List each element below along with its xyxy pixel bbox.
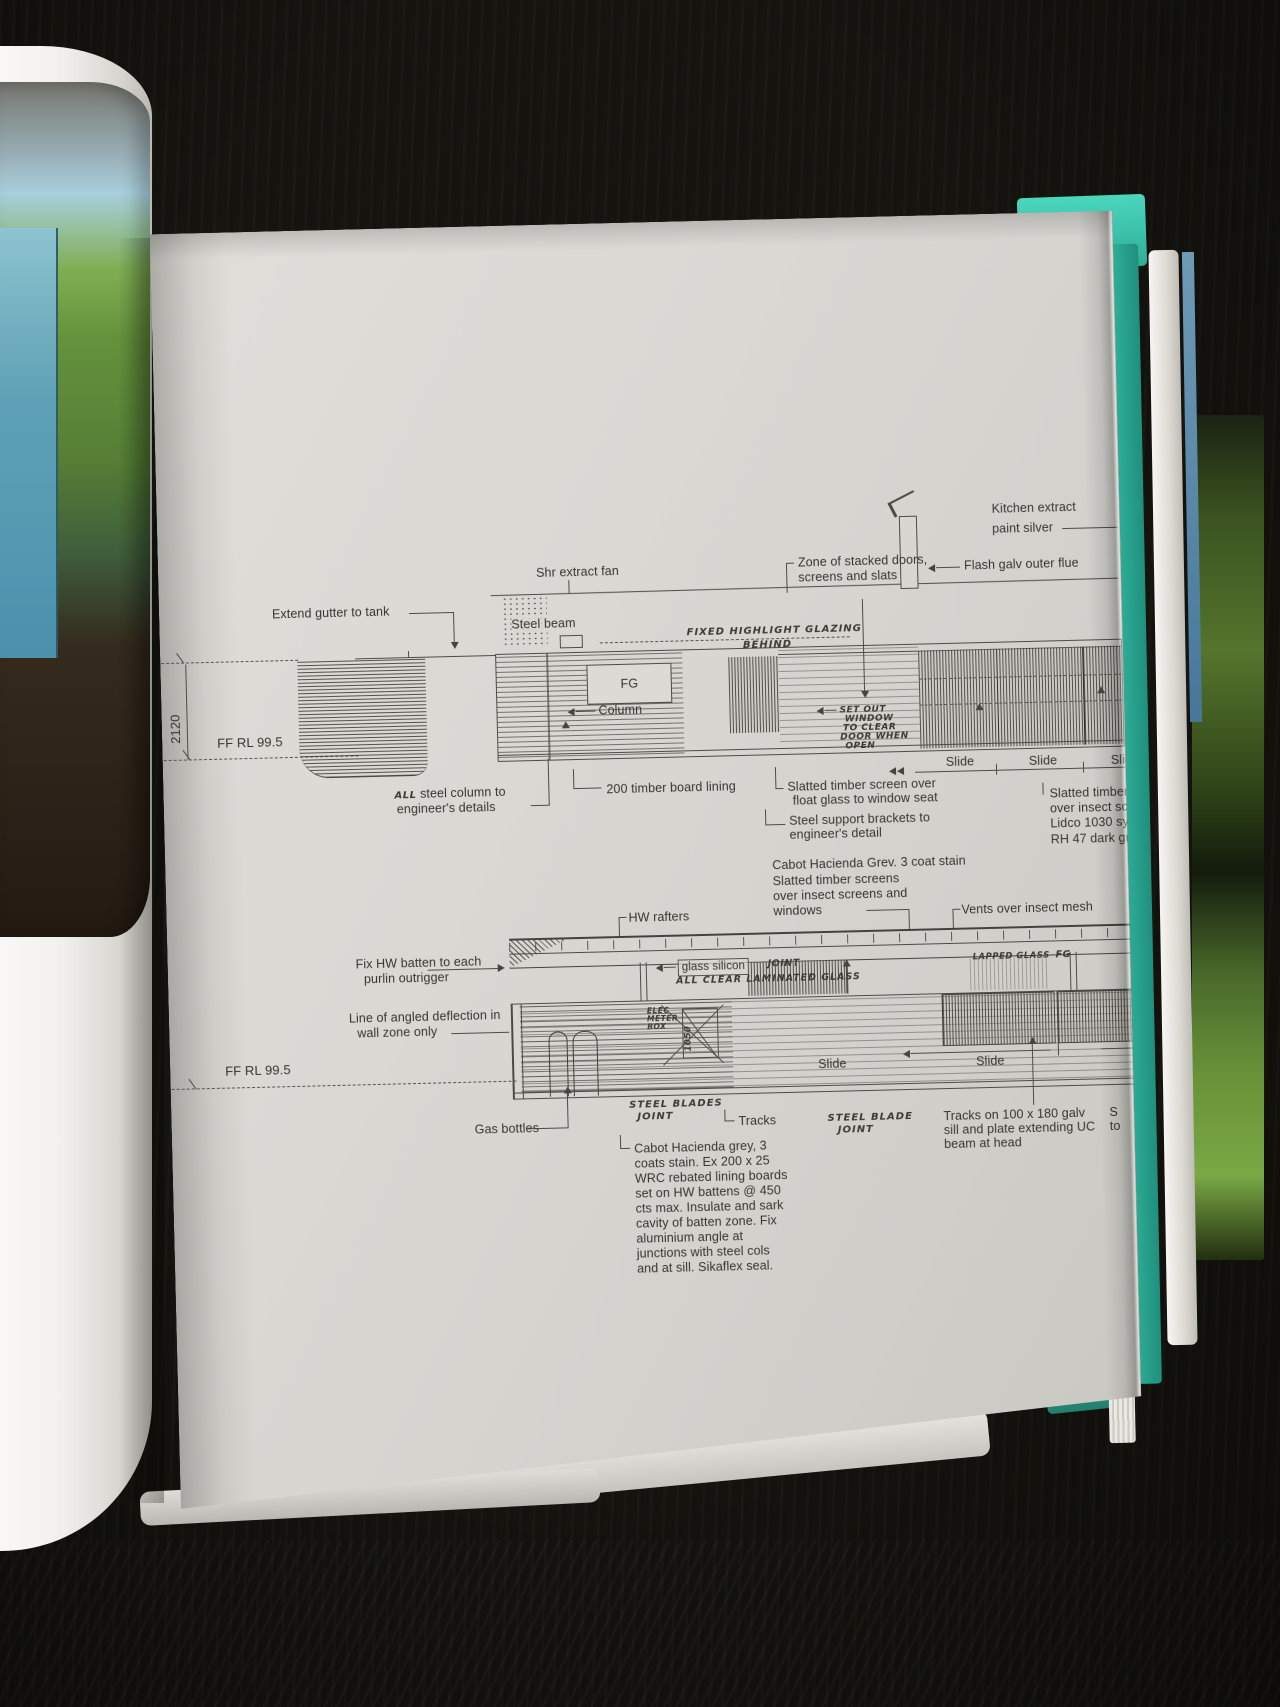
bracket bbox=[775, 767, 777, 789]
arrow-up-icon bbox=[1029, 1037, 1037, 1044]
bracket bbox=[620, 1135, 621, 1149]
hand-lapped-glass: LAPPED GLASS bbox=[973, 951, 1050, 963]
label-timber-lining: 200 timber board lining bbox=[606, 779, 736, 797]
bracket bbox=[765, 809, 766, 825]
bracket bbox=[725, 1120, 735, 1121]
leader-line bbox=[548, 759, 550, 806]
label-cabot-mid-3: windows bbox=[773, 903, 822, 919]
arrow-left-icon bbox=[816, 707, 823, 715]
arrow-left-icon bbox=[567, 708, 574, 716]
label-kitchen-2: paint silver bbox=[992, 520, 1053, 536]
bracket bbox=[573, 787, 601, 789]
fg-window-box: FG bbox=[586, 663, 672, 705]
leader-line bbox=[451, 1032, 509, 1034]
hand-fg: FG bbox=[1055, 950, 1071, 961]
arrow-left-icon bbox=[656, 964, 663, 972]
bracket bbox=[775, 788, 783, 789]
zone-bracket bbox=[786, 563, 794, 564]
label-zone-1: Zone of stacked doors, bbox=[798, 552, 928, 570]
arrow-up-icon bbox=[564, 1086, 572, 1093]
datum-label-upper: FF RL 99.5 bbox=[217, 734, 283, 751]
arrow-down-icon bbox=[861, 691, 869, 698]
label-gas-bottles: Gas bottles bbox=[475, 1121, 540, 1138]
hand-blades2-a: STEEL BLADE bbox=[827, 1112, 913, 1125]
wood-grain-texture-bottom bbox=[0, 1540, 1280, 1707]
lower-elevation-body bbox=[511, 986, 1144, 1100]
label-slide-lower-2: Slide bbox=[976, 1054, 1005, 1070]
dim-tick bbox=[996, 764, 997, 775]
leader-line bbox=[568, 580, 569, 593]
label-flash-galv: Flash galv outer flue bbox=[964, 556, 1079, 574]
arrow-up-icon bbox=[562, 721, 570, 728]
book-page: 2120 FF RL 99.5 FG bbox=[150, 211, 1144, 1509]
slat-panel-small bbox=[728, 656, 780, 733]
bracket bbox=[620, 1148, 630, 1149]
bracket bbox=[952, 909, 953, 928]
label-support-2: engineer's detail bbox=[789, 826, 882, 843]
label-shr-extract-fan: Shr extract fan bbox=[536, 564, 619, 581]
bracket bbox=[1042, 783, 1043, 795]
arrow-up-icon bbox=[975, 703, 983, 710]
hand-blades2-b: JOINT bbox=[838, 1125, 874, 1136]
windows-leader bbox=[908, 909, 909, 929]
leader-line bbox=[453, 612, 455, 644]
hand-fixed-highlight-2: BEHIND bbox=[743, 640, 792, 652]
label-slide-2: Slide bbox=[1029, 753, 1058, 769]
arrow-left-icon bbox=[903, 1050, 910, 1058]
label-slatted-2: float glass to window seat bbox=[793, 790, 938, 809]
label-hw-rafters: HW rafters bbox=[628, 909, 689, 925]
fg-label: FG bbox=[620, 677, 638, 691]
dim-2120: 2120 bbox=[167, 680, 184, 744]
hand-elec-2: BOX bbox=[647, 1022, 666, 1033]
post bbox=[640, 963, 642, 1001]
zone-bracket bbox=[786, 563, 788, 593]
label-fix-hw-2: purlin outrigger bbox=[364, 970, 449, 987]
label-cabot-para-5: cavity of batten zone. Fix bbox=[636, 1213, 777, 1231]
upper-elevation-body: FG bbox=[495, 639, 1124, 762]
rafter-ticks bbox=[509, 925, 1143, 952]
leader-line bbox=[936, 567, 960, 569]
label-kitchen-1: Kitchen extract bbox=[991, 500, 1076, 517]
leader-line bbox=[409, 612, 454, 614]
bracket bbox=[952, 909, 960, 910]
bracket bbox=[619, 917, 620, 936]
hand-joint: JOINT bbox=[768, 959, 800, 970]
arrow-right-icon bbox=[498, 964, 505, 972]
post bbox=[1076, 952, 1078, 990]
label-cabot-para-8: and at sill. Sikaflex seal. bbox=[637, 1258, 773, 1276]
gas-bottle-outline bbox=[572, 1031, 599, 1097]
page-top-shade bbox=[150, 211, 1113, 261]
arrow-left-icon bbox=[897, 767, 904, 775]
hand-dim-1050: 1050 bbox=[683, 1011, 694, 1051]
label-column: Column bbox=[598, 702, 642, 718]
glass-silicon-text: glass silicon bbox=[682, 960, 746, 974]
arrow-left-icon bbox=[889, 767, 896, 775]
arrow-left-icon bbox=[928, 564, 935, 572]
post bbox=[646, 962, 648, 1000]
leader-line bbox=[531, 805, 549, 806]
arrow-down-icon bbox=[451, 642, 459, 649]
left-photo-glass-panel bbox=[0, 228, 58, 658]
hand-blades1-b: JOINT bbox=[637, 1112, 673, 1123]
bracket bbox=[619, 917, 627, 918]
label-tracks-on-2: beam at head bbox=[944, 1135, 1022, 1152]
label-cabot-mid-2: over insect screens and bbox=[773, 886, 908, 904]
label-cabot-mid-0: Cabot Hacienda Grev. 3 coat stain bbox=[772, 854, 966, 874]
hand-all: ALL bbox=[394, 790, 416, 802]
bracket bbox=[573, 769, 574, 789]
label-steel-beam: Steel beam bbox=[511, 616, 576, 633]
page-gutter-shade bbox=[150, 232, 259, 1509]
label-slide-1: Slide bbox=[946, 754, 975, 770]
label-tracks: Tracks bbox=[738, 1113, 776, 1129]
hand-blades1-a: STEEL BLADES bbox=[629, 1099, 723, 1112]
book-photo-scene: 2120 FF RL 99.5 FG bbox=[0, 0, 1280, 1707]
label-vents: Vents over insect mesh bbox=[961, 899, 1093, 917]
windows-leader bbox=[866, 909, 908, 911]
hand-set-out-4: OPEN bbox=[845, 741, 875, 752]
background-landscape-strip bbox=[1192, 415, 1264, 1260]
label-extend-gutter: Extend gutter to tank bbox=[272, 605, 390, 623]
datum-label-lower: FF RL 99.5 bbox=[225, 1062, 291, 1079]
label-steel-column-text: steel column to bbox=[420, 785, 506, 801]
label-slide-lower-1: Slide bbox=[818, 1057, 847, 1073]
bracket bbox=[765, 824, 785, 825]
label-steel-column-2: engineer's details bbox=[397, 800, 496, 817]
wall-slat-panel bbox=[942, 991, 1056, 1046]
flue-cap bbox=[887, 490, 920, 518]
label-zone-2: screens and slats bbox=[798, 568, 897, 585]
label-line-angled-2: wall zone only bbox=[357, 1025, 437, 1042]
beam-plate bbox=[560, 635, 583, 649]
dim-tick bbox=[1083, 762, 1084, 773]
gutter-tick bbox=[408, 651, 409, 658]
water-tank-hatched bbox=[297, 659, 428, 779]
